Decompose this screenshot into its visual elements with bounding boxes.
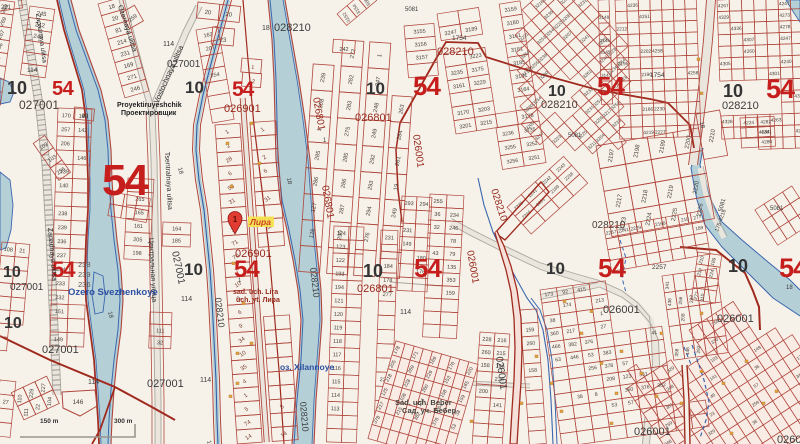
svg-text:216: 216 (497, 338, 507, 345)
svg-text:026801: 026801 (355, 112, 392, 124)
svg-text:18: 18 (205, 440, 213, 444)
svg-text:124: 124 (337, 231, 346, 237)
svg-text:4336: 4336 (731, 26, 742, 32)
svg-text:54: 54 (414, 253, 442, 283)
svg-text:4328: 4328 (722, 119, 733, 125)
svg-text:41: 41 (651, 330, 658, 337)
svg-text:026001: 026001 (717, 313, 754, 325)
svg-text:Ozero Svezhenkoye: Ozero Svezhenkoye (68, 287, 158, 298)
svg-text:164: 164 (172, 226, 181, 232)
svg-text:1: 1 (233, 215, 238, 224)
svg-text:227: 227 (41, 383, 48, 393)
svg-text:135: 135 (447, 264, 456, 270)
svg-text:Лира: Лира (249, 217, 271, 227)
svg-text:149: 149 (54, 337, 63, 343)
svg-text:026801: 026801 (357, 283, 394, 295)
svg-text:026901: 026901 (224, 103, 261, 115)
svg-text:120: 120 (334, 312, 343, 318)
svg-text:028210: 028210 (722, 100, 759, 112)
svg-text:10: 10 (184, 260, 203, 279)
svg-text:027001: 027001 (19, 98, 59, 112)
svg-text:206: 206 (61, 141, 70, 147)
svg-text:4260: 4260 (744, 49, 755, 55)
svg-text:4307: 4307 (743, 37, 754, 43)
svg-text:54: 54 (766, 74, 795, 104)
svg-text:uch. yt. Лира: uch. yt. Лира (236, 297, 280, 304)
svg-text:170: 170 (62, 113, 71, 119)
svg-text:123: 123 (336, 244, 345, 250)
svg-text:146: 146 (77, 156, 86, 162)
svg-text:026901: 026901 (235, 248, 272, 260)
svg-text:3156: 3156 (414, 42, 427, 49)
svg-text:221: 221 (1, 5, 12, 11)
svg-text:228: 228 (482, 337, 492, 344)
svg-text:53: 53 (611, 402, 618, 409)
svg-text:114: 114 (27, 67, 38, 74)
svg-text:3146: 3146 (600, 38, 611, 43)
svg-text:32: 32 (434, 225, 440, 231)
svg-text:02600: 02600 (777, 434, 800, 444)
svg-text:111: 111 (23, 408, 30, 417)
svg-text:10: 10 (548, 83, 566, 100)
svg-text:78: 78 (450, 239, 456, 245)
svg-text:38: 38 (577, 394, 584, 401)
svg-text:114: 114 (163, 41, 174, 48)
svg-text:184: 184 (384, 264, 393, 270)
svg-text:4251: 4251 (639, 14, 650, 20)
svg-text:2212: 2212 (616, 26, 627, 32)
svg-text:32: 32 (157, 340, 163, 346)
svg-text:18: 18 (262, 25, 270, 32)
svg-text:238: 238 (58, 211, 67, 217)
svg-text:149: 149 (402, 241, 411, 247)
svg-text:104: 104 (47, 397, 54, 407)
svg-text:232: 232 (55, 295, 64, 301)
svg-text:4240: 4240 (781, 59, 792, 65)
svg-text:114: 114 (400, 309, 411, 316)
svg-text:54: 54 (52, 78, 75, 100)
svg-text:10: 10 (7, 78, 27, 98)
svg-text:1754: 1754 (452, 35, 467, 42)
svg-text:27: 27 (2, 399, 9, 406)
svg-text:415: 415 (577, 287, 587, 294)
svg-text:36: 36 (434, 212, 440, 218)
svg-text:257: 257 (61, 127, 70, 133)
svg-text:360: 360 (624, 387, 634, 394)
svg-text:028210: 028210 (437, 46, 474, 58)
svg-text:292: 292 (696, 345, 702, 354)
svg-text:142: 142 (78, 128, 87, 134)
svg-text:Проектировщик: Проектировщик (121, 110, 177, 117)
svg-text:146: 146 (73, 399, 84, 406)
svg-text:10: 10 (723, 81, 743, 101)
svg-text:208: 208 (680, 313, 686, 322)
svg-text:79: 79 (449, 252, 455, 258)
svg-text:115: 115 (332, 379, 341, 385)
svg-text:293: 293 (404, 201, 413, 207)
svg-text:57: 57 (628, 400, 635, 407)
svg-text:4247: 4247 (779, 1, 790, 7)
svg-text:376: 376 (641, 384, 651, 391)
svg-text:3155: 3155 (413, 29, 426, 36)
svg-text:232: 232 (689, 295, 695, 304)
svg-text:026001: 026001 (603, 304, 640, 316)
svg-text:1: 1 (251, 65, 255, 71)
svg-text:54: 54 (413, 71, 441, 101)
svg-text:54: 54 (779, 253, 800, 283)
svg-text:028210: 028210 (274, 22, 311, 34)
svg-text:10: 10 (185, 78, 204, 97)
svg-text:Proyektiruyeshchik: Proyektiruyeshchik (117, 102, 182, 109)
svg-text:4271: 4271 (795, 128, 800, 134)
svg-text:sad. uch. Lira: sad. uch. Lira (233, 289, 278, 296)
svg-text:151: 151 (55, 309, 64, 315)
svg-text:121: 121 (334, 298, 343, 304)
svg-text:159: 159 (446, 290, 455, 296)
svg-text:383: 383 (602, 350, 612, 357)
svg-text:300 m: 300 m (114, 418, 133, 425)
svg-text:294: 294 (419, 202, 428, 208)
svg-text:114: 114 (331, 393, 340, 399)
svg-text:173: 173 (544, 291, 554, 298)
svg-text:159: 159 (525, 327, 534, 334)
svg-text:239: 239 (58, 225, 67, 231)
svg-text:4247: 4247 (780, 36, 791, 42)
svg-text:208: 208 (606, 376, 616, 383)
svg-text:205: 205 (133, 237, 142, 243)
svg-text:2257: 2257 (652, 264, 667, 271)
svg-text:4258: 4258 (688, 70, 699, 76)
svg-text:246: 246 (449, 226, 458, 232)
svg-text:114: 114 (88, 379, 99, 386)
svg-text:341: 341 (665, 281, 671, 290)
svg-text:3157: 3157 (415, 55, 428, 62)
svg-text:260: 260 (526, 341, 535, 348)
svg-text:92: 92 (562, 289, 569, 296)
svg-text:382: 382 (657, 382, 667, 389)
svg-text:382: 382 (568, 341, 578, 348)
svg-text:358: 358 (674, 348, 680, 357)
svg-text:3148: 3148 (599, 15, 610, 20)
svg-text:239: 239 (78, 270, 91, 279)
svg-text:436: 436 (667, 298, 673, 307)
svg-text:4236: 4236 (627, 3, 638, 9)
svg-text:54: 54 (597, 71, 625, 101)
svg-text:123: 123 (622, 374, 632, 381)
svg-text:028210: 028210 (541, 99, 578, 111)
svg-text:200: 200 (479, 389, 489, 396)
svg-text:63: 63 (555, 357, 562, 364)
svg-text:38: 38 (549, 318, 556, 325)
svg-text:54: 54 (598, 253, 626, 283)
svg-text:260: 260 (481, 350, 491, 357)
svg-text:20: 20 (204, 10, 212, 17)
svg-text:229: 229 (29, 389, 36, 399)
svg-text:5081: 5081 (405, 7, 419, 13)
svg-text:20: 20 (225, 12, 233, 19)
svg-text:4273: 4273 (779, 13, 790, 19)
svg-text:027001: 027001 (42, 344, 79, 356)
svg-text:118: 118 (333, 339, 342, 345)
svg-text:10: 10 (3, 264, 21, 281)
svg-text:18: 18 (786, 285, 793, 291)
svg-text:4263: 4263 (771, 117, 782, 123)
svg-text:378: 378 (604, 363, 614, 370)
svg-text:4258: 4258 (652, 48, 663, 54)
svg-text:446: 446 (570, 354, 580, 361)
svg-text:310: 310 (700, 293, 706, 302)
svg-text:57: 57 (622, 361, 629, 368)
svg-text:4282: 4282 (760, 119, 771, 126)
svg-text:027001: 027001 (147, 378, 184, 390)
svg-text:236: 236 (57, 239, 66, 245)
svg-text:217: 217 (566, 328, 576, 335)
svg-text:141: 141 (493, 403, 503, 410)
svg-text:53: 53 (588, 352, 595, 359)
svg-text:4305: 4305 (720, 61, 731, 67)
svg-text:353: 353 (446, 277, 455, 283)
svg-text:026001: 026001 (634, 426, 671, 438)
svg-text:23: 23 (220, 38, 227, 44)
svg-text:234: 234 (450, 213, 459, 219)
svg-text:3145: 3145 (600, 49, 611, 54)
svg-text:114: 114 (181, 296, 192, 303)
svg-text:193: 193 (335, 271, 344, 277)
svg-text:117: 117 (332, 352, 341, 358)
svg-text:10: 10 (363, 261, 383, 281)
svg-text:Сад. уч. Бебер: Сад. уч. Бебер (402, 406, 457, 415)
svg-text:10: 10 (4, 315, 22, 332)
svg-text:242: 242 (339, 47, 348, 53)
svg-text:5081: 5081 (568, 133, 582, 139)
svg-text:158: 158 (480, 363, 490, 370)
svg-text:113: 113 (331, 406, 340, 412)
svg-text:5081: 5081 (770, 206, 784, 212)
svg-text:2186: 2186 (642, 107, 653, 113)
svg-text:27: 27 (600, 324, 607, 331)
svg-text:174: 174 (562, 302, 572, 309)
svg-text:2202: 2202 (640, 49, 651, 55)
svg-text:90: 90 (82, 114, 89, 120)
svg-text:198: 198 (132, 251, 141, 257)
svg-text:10: 10 (546, 259, 565, 278)
svg-text:231: 231 (403, 228, 412, 234)
svg-text:4281: 4281 (761, 129, 772, 136)
svg-text:110: 110 (17, 394, 24, 403)
svg-text:139: 139 (60, 169, 69, 175)
svg-text:238: 238 (78, 260, 91, 269)
svg-text:231: 231 (385, 235, 394, 241)
svg-text:255: 255 (433, 199, 442, 205)
svg-text:54: 54 (102, 156, 149, 205)
svg-text:256: 256 (678, 296, 684, 305)
svg-text:165: 165 (134, 210, 143, 216)
svg-text:4224: 4224 (743, 120, 754, 127)
svg-text:150 m: 150 m (40, 418, 59, 425)
svg-text:21: 21 (19, 248, 26, 255)
svg-text:108: 108 (3, 247, 13, 254)
svg-text:140: 140 (59, 183, 68, 189)
svg-text:446: 446 (685, 347, 691, 356)
svg-text:10: 10 (728, 256, 748, 276)
svg-text:119: 119 (333, 325, 342, 331)
svg-text:4280: 4280 (761, 139, 772, 146)
svg-text:4327: 4327 (794, 93, 800, 99)
svg-text:111: 111 (156, 328, 165, 334)
svg-text:4278: 4278 (780, 24, 791, 30)
svg-text:194: 194 (335, 285, 344, 291)
svg-text:2195: 2195 (618, 61, 629, 67)
svg-text:360: 360 (550, 330, 560, 337)
svg-text:4329: 4329 (718, 15, 729, 21)
svg-text:10: 10 (366, 79, 385, 98)
svg-text:256: 256 (588, 365, 598, 372)
svg-text:161: 161 (134, 224, 143, 230)
svg-text:4219: 4219 (643, 130, 654, 136)
svg-text:376: 376 (584, 339, 594, 346)
svg-text:54: 54 (232, 78, 255, 101)
svg-text:114: 114 (200, 377, 211, 384)
svg-text:4267: 4267 (718, 3, 729, 9)
svg-text:185: 185 (172, 238, 181, 244)
svg-text:2230: 2230 (654, 106, 665, 112)
svg-text:122: 122 (336, 258, 345, 264)
svg-text:027001: 027001 (10, 282, 44, 293)
svg-text:466: 466 (552, 343, 562, 350)
svg-text:оз. Xilannoye: оз. Xilannoye (280, 362, 334, 372)
svg-text:1754: 1754 (650, 72, 665, 79)
svg-text:158: 158 (528, 368, 537, 375)
svg-text:22: 22 (35, 404, 42, 411)
